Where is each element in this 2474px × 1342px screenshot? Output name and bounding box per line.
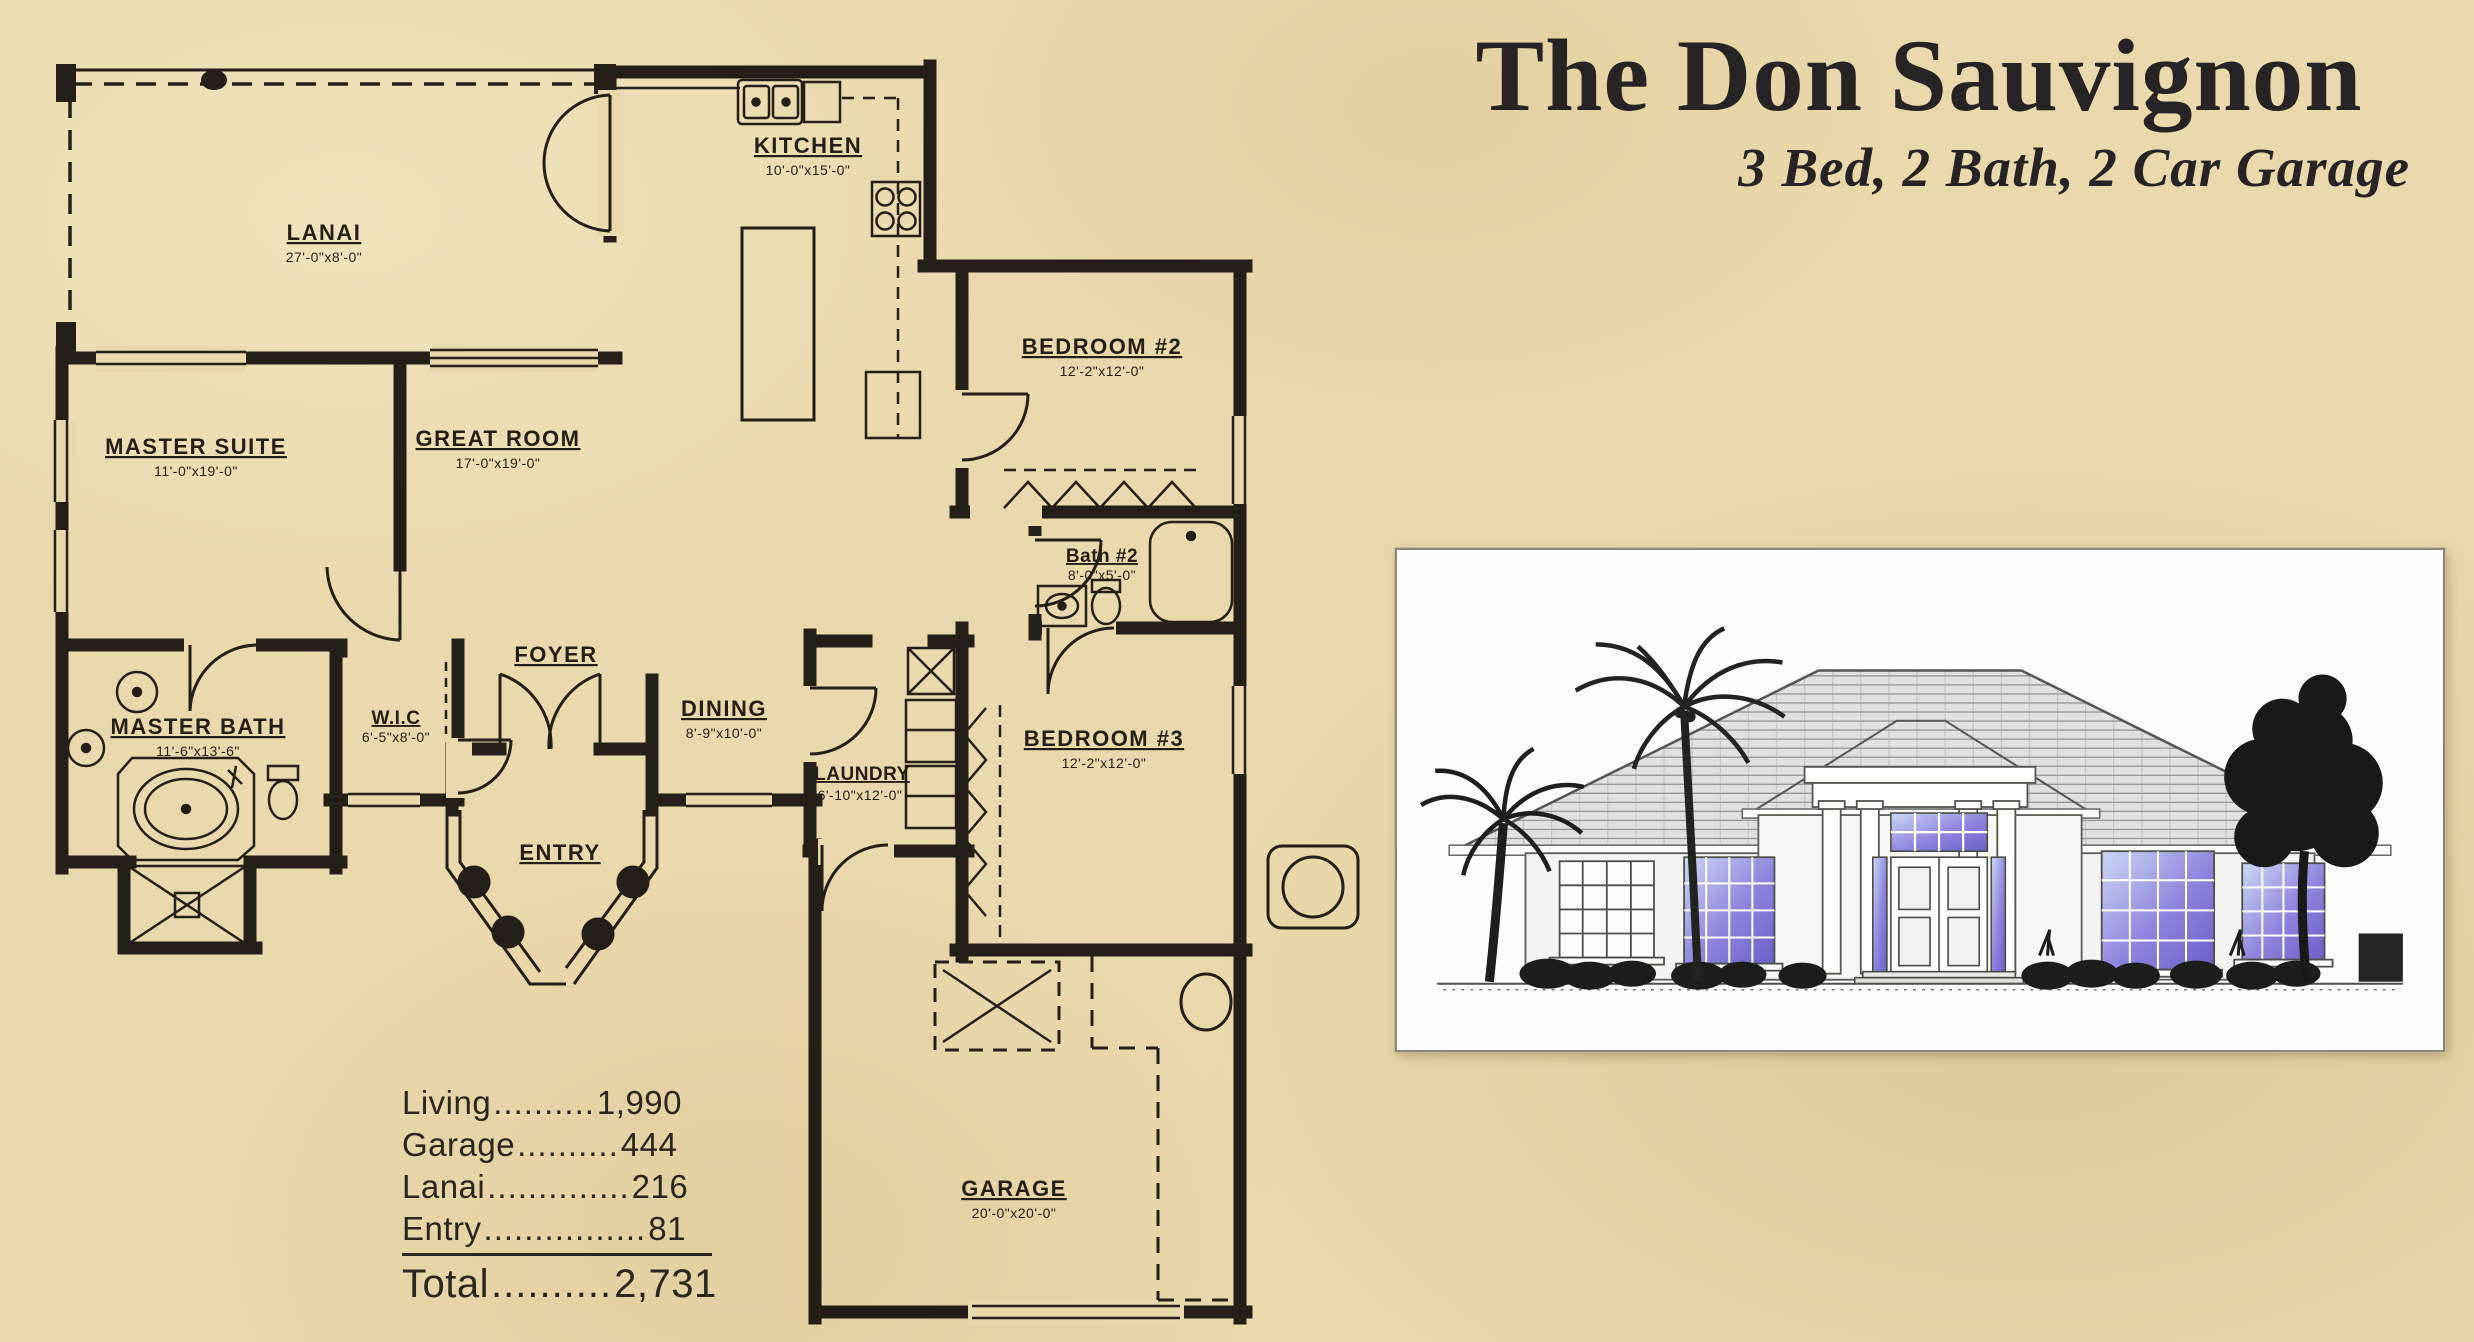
svg-text:10'-0"x15'-0": 10'-0"x15'-0" <box>766 162 851 178</box>
area-row-lanai: Lanai .............. 216 <box>402 1166 712 1208</box>
svg-text:GREAT ROOM: GREAT ROOM <box>416 426 581 451</box>
room-dining: DINING 8'-9"x10'-0" <box>681 696 767 741</box>
svg-text:LANAI: LANAI <box>287 220 362 245</box>
elevation-drawing <box>1397 550 2443 1050</box>
svg-text:FOYER: FOYER <box>514 642 597 667</box>
room-wic: W.I.C 6'-5"x8'-0" <box>362 708 430 745</box>
page-subtitle: 3 Bed, 2 Bath, 2 Car Garage <box>1402 136 2410 199</box>
room-garage: GARAGE 20'-0"x20'-0" <box>961 1176 1067 1221</box>
double-entry-doors <box>500 674 600 749</box>
flyer-page: LANAI 27'-0"x8'-0" KITCHEN 10'-0"x15'-0"… <box>0 0 2474 1342</box>
room-master-suite: MASTER SUITE 11'-0"x19'-0" <box>105 434 287 479</box>
svg-text:KITCHEN: KITCHEN <box>754 133 862 158</box>
svg-text:W.I.C: W.I.C <box>372 708 421 729</box>
svg-text:20'-0"x20'-0": 20'-0"x20'-0" <box>972 1205 1057 1221</box>
window-blue-large <box>2102 851 2214 969</box>
room-foyer: FOYER <box>514 642 597 667</box>
room-kitchen: KITCHEN 10'-0"x15'-0" <box>754 133 862 178</box>
area-row-total: Total .......... 2,731 <box>402 1253 712 1310</box>
svg-text:ENTRY: ENTRY <box>519 840 600 865</box>
area-row-living: Living .......... 1,990 <box>402 1082 712 1124</box>
window-blue-right <box>2242 863 2324 959</box>
svg-text:BEDROOM #3: BEDROOM #3 <box>1024 726 1184 751</box>
svg-text:MASTER BATH: MASTER BATH <box>111 714 286 739</box>
svg-text:8'-0"x5'-0": 8'-0"x5'-0" <box>1068 567 1136 583</box>
linen-cabinet <box>908 648 954 694</box>
room-master-bath: MASTER BATH 11'-6"x13'-6" <box>111 714 286 759</box>
elevation-panel <box>1395 548 2445 1052</box>
svg-text:11'-0"x19'-0": 11'-0"x19'-0" <box>154 463 238 479</box>
svg-text:27'-0"x8'-0": 27'-0"x8'-0" <box>286 249 363 265</box>
svg-text:Bath #2: Bath #2 <box>1066 546 1138 567</box>
entry-columns <box>447 810 657 984</box>
range <box>872 182 920 236</box>
room-bath-2: Bath #2 8'-0"x5'-0" <box>1066 546 1138 583</box>
title-block: The Don Sauvignon 3 Bed, 2 Bath, 2 Car G… <box>1402 22 2436 199</box>
page-title: The Don Sauvignon <box>1402 22 2436 130</box>
svg-text:12'-2"x12'-0": 12'-2"x12'-0" <box>1062 755 1147 771</box>
svg-text:GARAGE: GARAGE <box>961 1176 1067 1201</box>
shower <box>128 866 246 944</box>
garden-tub <box>118 758 254 860</box>
garage-details <box>935 956 1236 1300</box>
lanai-screen <box>56 64 616 360</box>
svg-text:LAUNDRY: LAUNDRY <box>814 764 910 785</box>
lanai-column <box>201 70 227 90</box>
refrigerator <box>866 372 920 438</box>
kitchen-island <box>742 228 814 420</box>
svg-text:BEDROOM #2: BEDROOM #2 <box>1022 334 1182 359</box>
water-heater <box>1181 974 1231 1030</box>
svg-text:17'-0"x19'-0": 17'-0"x19'-0" <box>456 455 541 471</box>
room-great-room: GREAT ROOM 17'-0"x19'-0" <box>416 426 581 471</box>
window-grid <box>1560 861 1654 957</box>
kitchen-sink <box>616 80 802 124</box>
svg-text:DINING: DINING <box>681 696 767 721</box>
svg-text:12'-2"x12'-0": 12'-2"x12'-0" <box>1060 363 1145 379</box>
svg-text:8'-9"x10'-0": 8'-9"x10'-0" <box>686 725 763 741</box>
dishwasher <box>804 82 840 122</box>
ac-unit <box>2359 934 2403 982</box>
laundry-fixtures <box>906 648 956 828</box>
room-bedroom-2: BEDROOM #2 12'-2"x12'-0" <box>1022 334 1182 379</box>
master-bath-fixtures <box>68 672 298 944</box>
svg-text:6'-10"x12'-0": 6'-10"x12'-0" <box>818 787 903 803</box>
room-entry: ENTRY <box>519 840 600 865</box>
room-bedroom-3: BEDROOM #3 12'-2"x12'-0" <box>1024 726 1184 771</box>
toilet <box>268 766 298 819</box>
svg-text:MASTER SUITE: MASTER SUITE <box>105 434 287 459</box>
slab-edge <box>1092 956 1236 1300</box>
area-row-entry: Entry ................ 81 <box>402 1208 712 1250</box>
ac-pad <box>1268 846 1358 928</box>
svg-text:11'-6"x13'-6": 11'-6"x13'-6" <box>156 743 240 759</box>
room-laundry: LAUNDRY 6'-10"x12'-0" <box>814 764 910 803</box>
room-lanai: LANAI 27'-0"x8'-0" <box>286 220 363 265</box>
area-table: Living .......... 1,990 Garage .........… <box>402 1082 712 1310</box>
area-row-garage: Garage .......... 444 <box>402 1124 712 1166</box>
svg-text:6'-5"x8'-0": 6'-5"x8'-0" <box>362 729 430 745</box>
